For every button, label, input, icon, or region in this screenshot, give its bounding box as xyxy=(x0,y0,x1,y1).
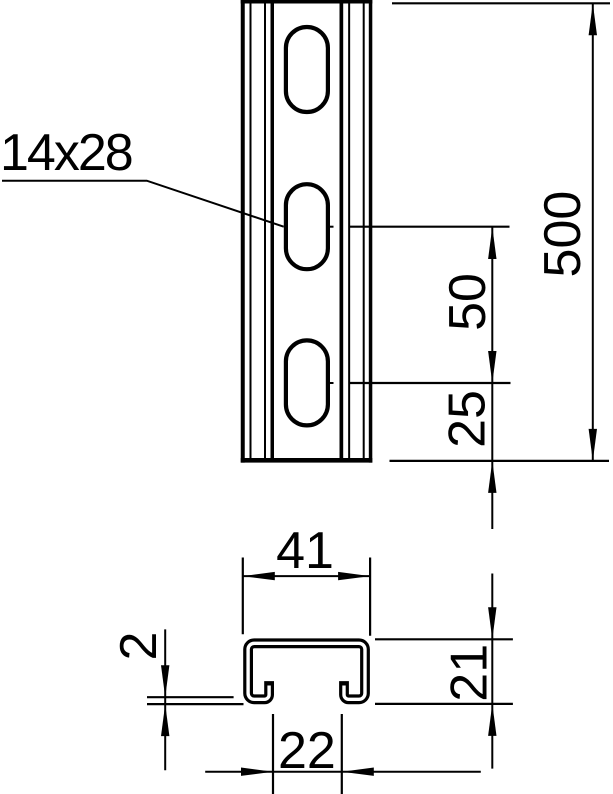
svg-text:50: 50 xyxy=(439,273,497,331)
svg-text:14x28: 14x28 xyxy=(0,124,132,182)
svg-text:21: 21 xyxy=(441,644,499,702)
svg-text:22: 22 xyxy=(278,722,336,780)
svg-text:2: 2 xyxy=(110,632,168,661)
svg-text:41: 41 xyxy=(276,522,334,580)
svg-text:25: 25 xyxy=(439,390,497,448)
svg-text:500: 500 xyxy=(534,191,592,278)
